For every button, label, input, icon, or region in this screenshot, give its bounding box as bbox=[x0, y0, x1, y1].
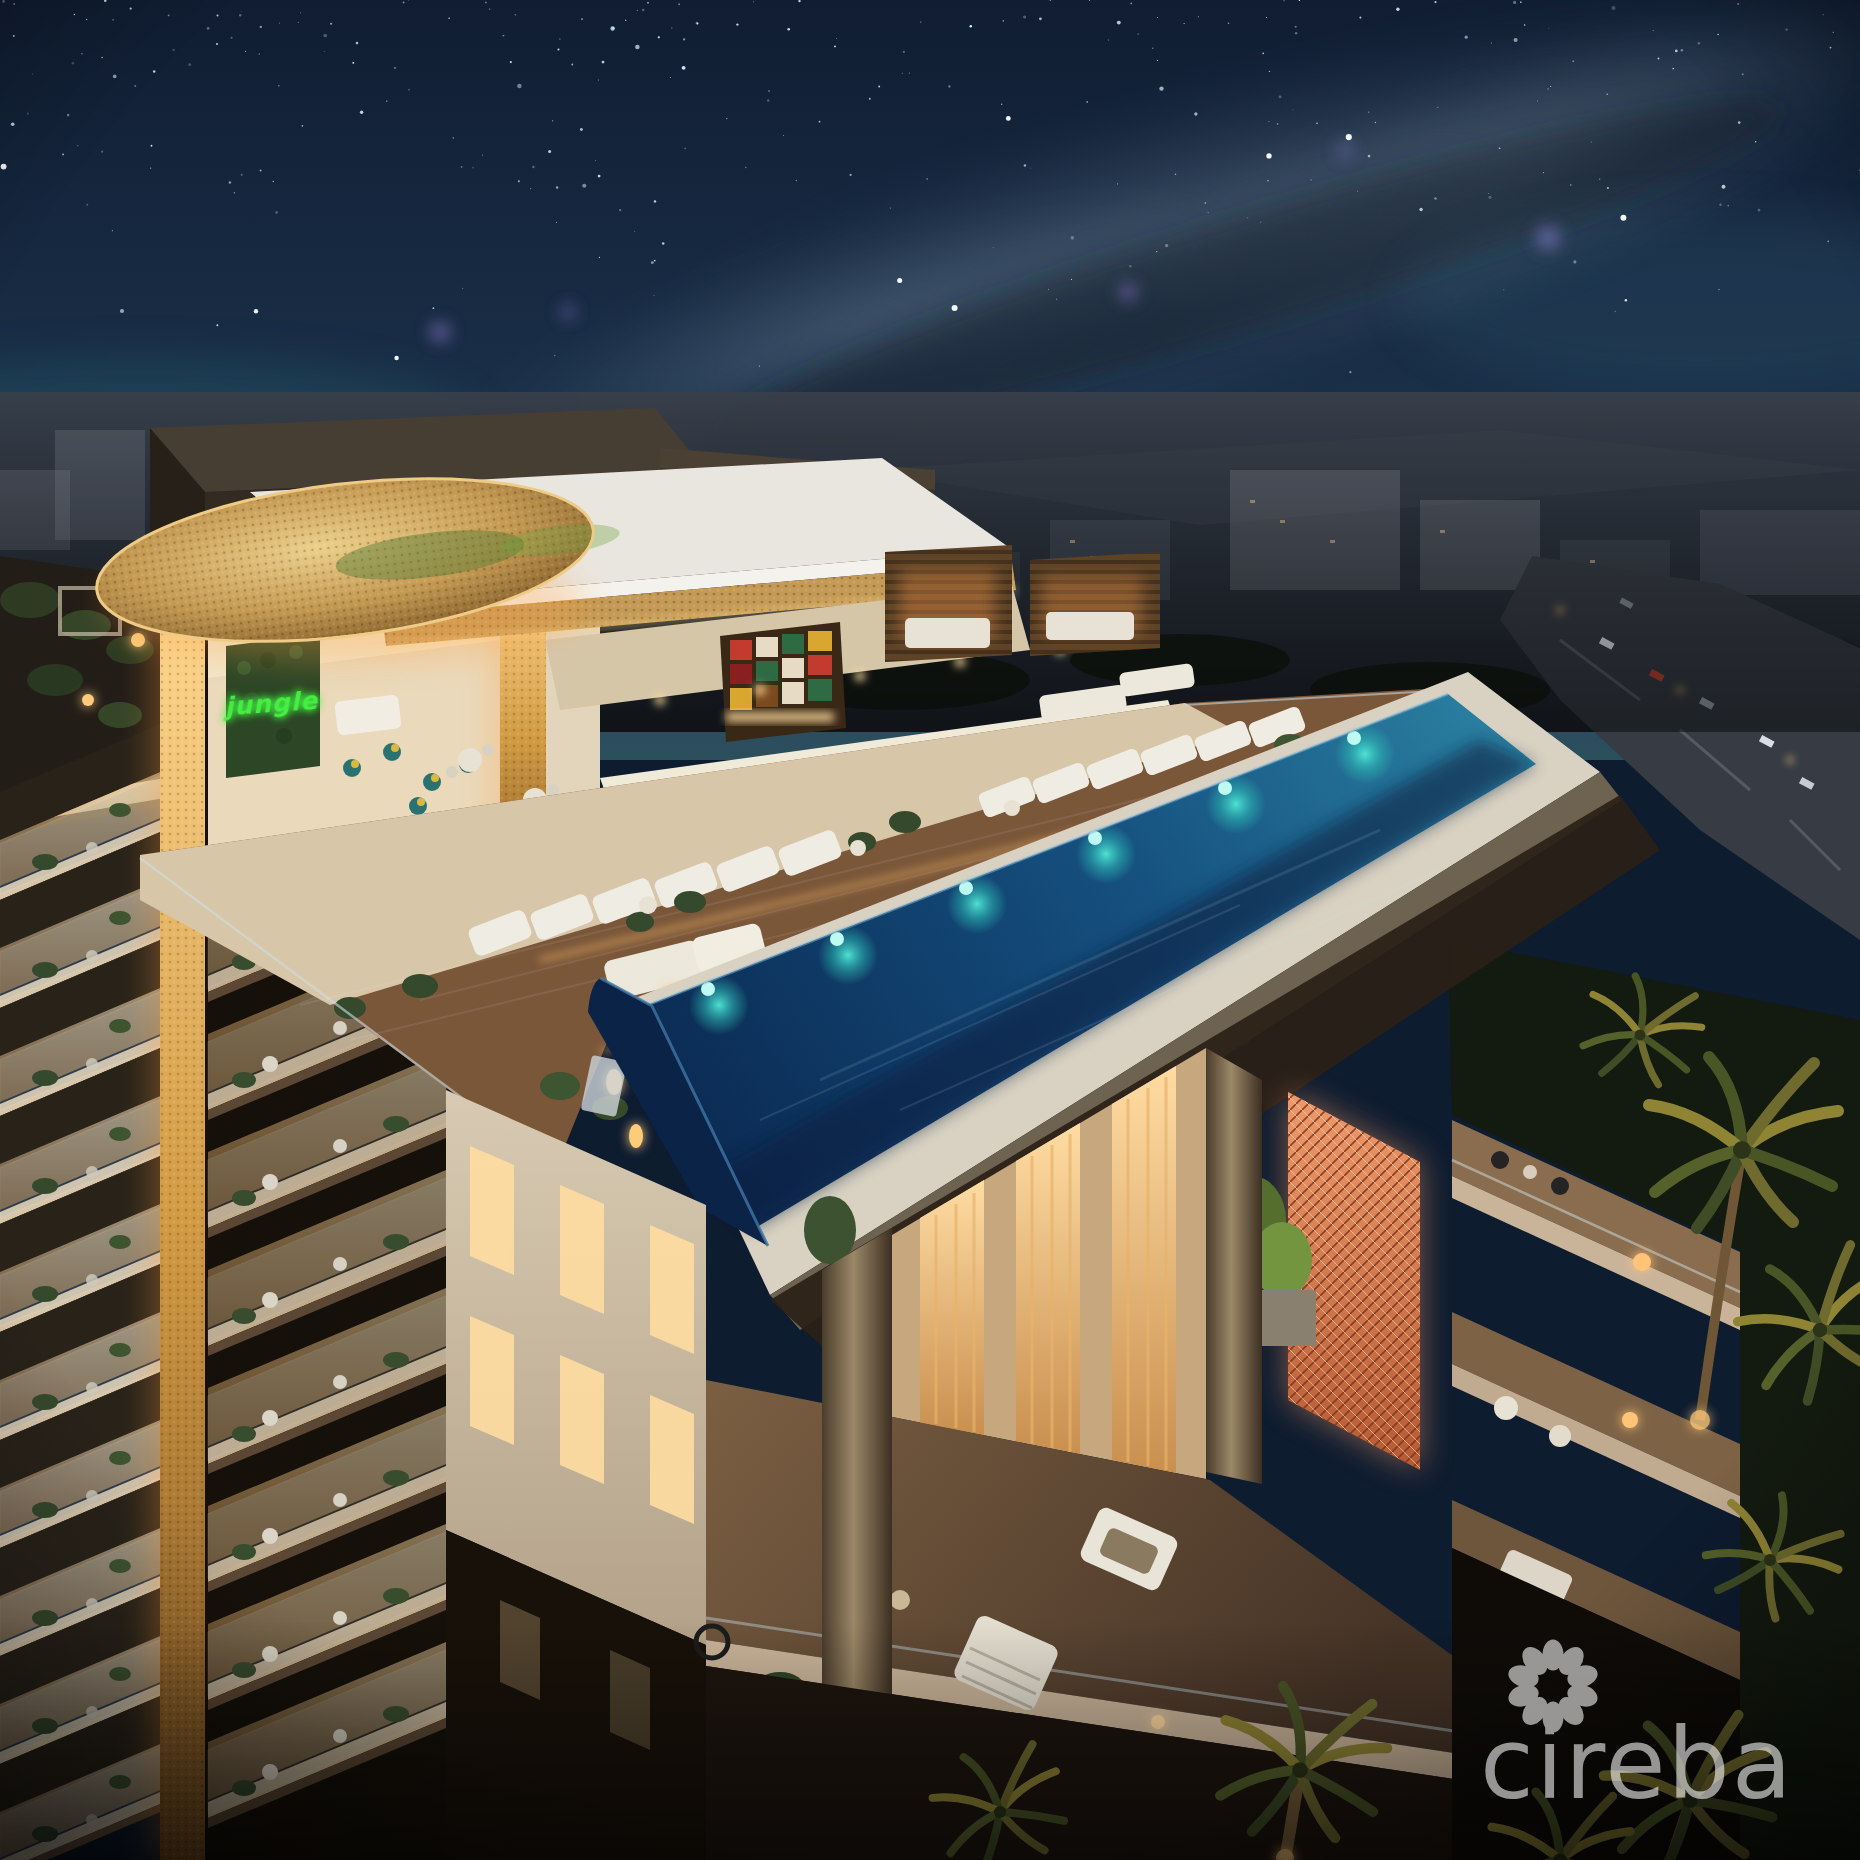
rendering-canvas: jungle bbox=[0, 0, 1860, 1860]
scene-svg: jungle bbox=[0, 0, 1860, 1860]
cireba-watermark-text: cireba bbox=[1480, 1707, 1794, 1821]
vignette bbox=[0, 0, 1860, 1860]
